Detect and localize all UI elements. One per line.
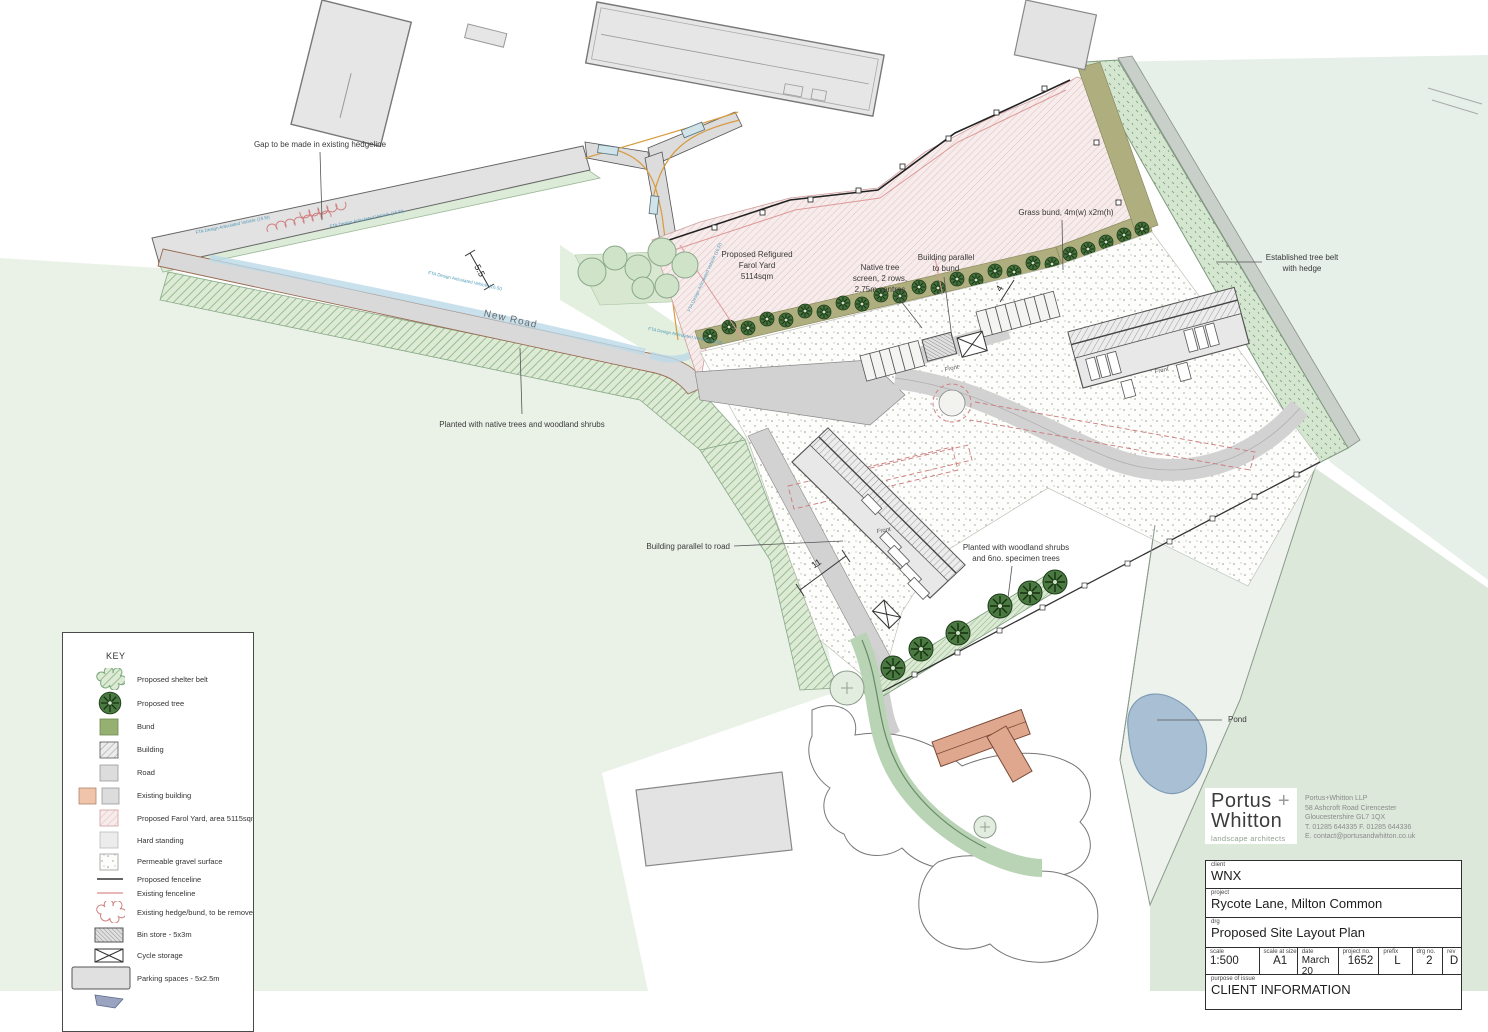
key-item-shelter-belt: Proposed shelter belt (63, 667, 253, 691)
drg-no-cell: drg no.2 (1413, 948, 1444, 974)
building-top-center (586, 2, 884, 116)
svg-text:to bund: to bund (933, 264, 960, 273)
title-block: client WNX project Rycote Lane, Milton C… (1205, 860, 1462, 1010)
ann-planted-woodland: Planted with woodland shrubs and 6no. sp… (963, 543, 1069, 563)
scale-cell: scale1:500 (1206, 948, 1260, 974)
key-item-bin-store: Bin store - 5x3m (63, 924, 253, 945)
date-cell: dateMarch 20 (1298, 948, 1339, 974)
farol-yard-swatch (87, 809, 133, 827)
key-item-road: Road (63, 761, 253, 784)
key-item-partial (63, 991, 253, 1011)
gravel-swatch (87, 853, 133, 871)
title-block-client: client WNX (1206, 861, 1461, 889)
building-top-left (291, 0, 411, 146)
svg-text:Planted with woodland shrubs: Planted with woodland shrubs (963, 543, 1069, 552)
ann-gap-hedgeline: Gap to be made in existing hedgeline (254, 140, 387, 149)
title-block-drawing: drg Proposed Site Layout Plan (1206, 918, 1461, 948)
key-item-bund: Bund (63, 715, 253, 738)
scale-size-cell: scale at sizeA1 (1260, 948, 1298, 974)
existing-building-swatch (67, 787, 133, 805)
key-item-building: Building (63, 738, 253, 761)
project-value: Rycote Lane, Milton Common (1211, 896, 1461, 911)
dim-5-5: 5.5 (472, 263, 487, 279)
title-block-purpose: purpose of issue CLIENT INFORMATION (1206, 975, 1461, 1007)
svg-text:5114sqm: 5114sqm (741, 272, 774, 281)
logo-whitton: Whitton (1211, 811, 1291, 831)
hard-standing-swatch (87, 831, 133, 849)
existing-fenceline-swatch (87, 889, 133, 897)
existing-road (152, 146, 590, 266)
key-item-gravel: Permeable gravel surface (63, 851, 253, 872)
logo-portus: Portus (1211, 790, 1272, 812)
project-no-cell: project no.1652 (1339, 948, 1380, 974)
ann-planted-native: Planted with native trees and woodland s… (439, 420, 604, 429)
svg-text:screen, 2 rows,: screen, 2 rows, (853, 274, 907, 283)
building-top-left-small (465, 24, 507, 47)
svg-text:Farol Yard: Farol Yard (739, 261, 776, 270)
key-item-proposed-tree: Proposed tree (63, 691, 253, 715)
address-block: Portus+Whitton LLP 58 Ashcroft Road Cire… (1305, 788, 1415, 844)
existing-building-west (636, 772, 792, 866)
svg-text:Building parallel: Building parallel (918, 253, 975, 262)
prefix-cell: prefixL (1379, 948, 1412, 974)
key-legend: KEY Proposed shelter belt Proposed tree … (62, 632, 254, 1032)
ann-grass-bund: Grass bund, 4m(w) x2m(h) (1018, 208, 1113, 217)
shelter-belt-swatch (87, 668, 133, 690)
logo-tagline: landscape architects (1211, 834, 1291, 843)
logo: Portus + Whitton landscape architects (1205, 788, 1297, 844)
drawing-sheet: { "plan": { "road_label": "New Road", "f… (0, 0, 1488, 991)
cycle-storage-swatch (87, 948, 133, 963)
ann-pond: Pond (1228, 715, 1247, 724)
key-item-farol-yard: Proposed Farol Yard, area 5115sqm (63, 807, 253, 829)
key-item-proposed-fenceline: Proposed fenceline (63, 872, 253, 886)
rev-cell: revD (1443, 948, 1461, 974)
ann-building-road: Building parallel to road (646, 542, 730, 551)
key-item-parking: Parking spaces - 5x2.5m (63, 965, 253, 991)
svg-text:FTA Design Articulated Vehicle: FTA Design Articulated Vehicle (16.5t) (428, 270, 503, 291)
key-item-hard-standing: Hard standing (63, 829, 253, 851)
partial-swatch (87, 993, 133, 1009)
title-block-project: project Rycote Lane, Milton Common (1206, 889, 1461, 918)
ann-native-screen: Native tree screen, 2 rows, 2.75m centre… (853, 263, 907, 294)
proposed-fenceline-swatch (87, 875, 133, 883)
building-swatch (87, 741, 133, 759)
bin-store-swatch (87, 927, 133, 943)
proposed-tree-swatch (87, 691, 133, 715)
svg-text:Established tree belt: Established tree belt (1266, 253, 1339, 262)
parking-swatch (69, 966, 133, 990)
key-item-existing-fenceline: Existing fenceline (63, 886, 253, 900)
svg-text:Proposed Refigured: Proposed Refigured (721, 250, 792, 259)
client-value: WNX (1211, 868, 1461, 883)
svg-text:and 6no. specimen trees: and 6no. specimen trees (972, 554, 1060, 563)
svg-text:Native tree: Native tree (861, 263, 900, 272)
purpose-value: CLIENT INFORMATION (1211, 982, 1461, 997)
bund-swatch (87, 718, 133, 736)
drawing-value: Proposed Site Layout Plan (1211, 925, 1461, 940)
title-block-meta: scale1:500 scale at sizeA1 dateMarch 20 … (1206, 948, 1461, 975)
key-item-existing-building: Existing building (63, 784, 253, 807)
key-item-hedge-removed: Existing hedge/bund, to be removed (63, 900, 253, 924)
svg-text:2.75m centres: 2.75m centres (855, 285, 906, 294)
hedge-removed-swatch (87, 901, 133, 923)
svg-text:with hedge: with hedge (1282, 264, 1322, 273)
existing-hedge-strip (158, 168, 600, 272)
key-title: KEY (106, 651, 253, 661)
road-swatch (87, 764, 133, 782)
logo-plus: + (1278, 790, 1290, 812)
brand-block: Portus + Whitton landscape architects Po… (1205, 788, 1463, 844)
building-top-right (1014, 0, 1096, 70)
key-item-cycle-storage: Cycle storage (63, 945, 253, 965)
